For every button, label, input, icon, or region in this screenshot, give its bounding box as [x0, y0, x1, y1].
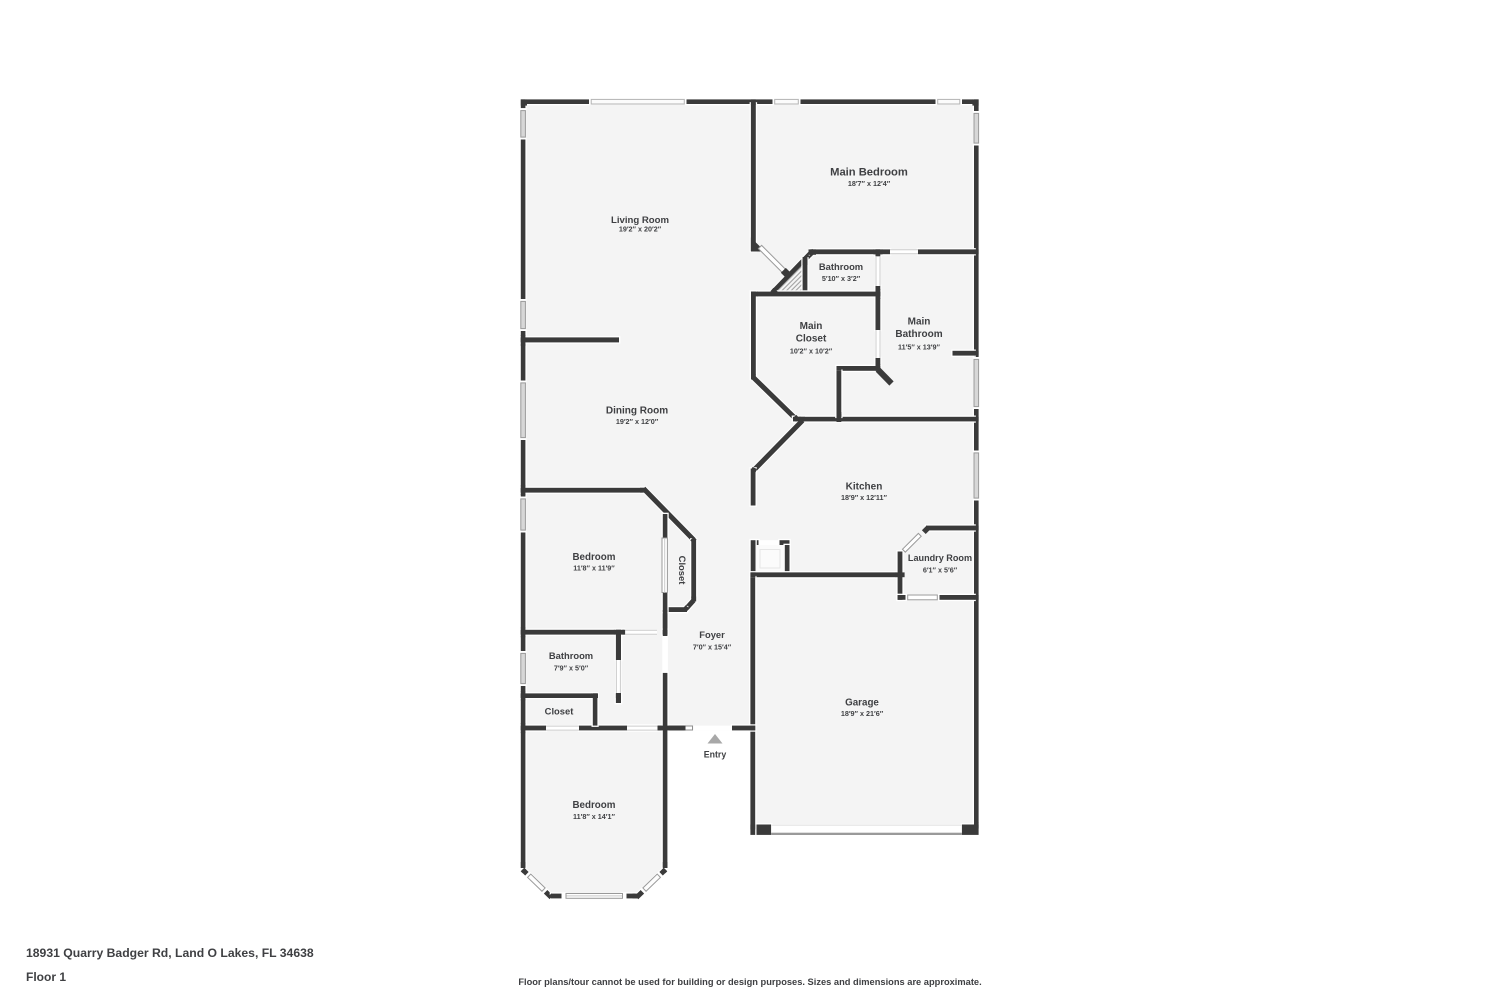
- svg-text:18′9″ x 12′11″: 18′9″ x 12′11″: [841, 493, 887, 502]
- svg-text:Closet: Closet: [796, 334, 827, 345]
- svg-text:Floor plans/tour cannot be use: Floor plans/tour cannot be used for buil…: [518, 977, 981, 987]
- svg-text:19′2″ x 12′0″: 19′2″ x 12′0″: [616, 417, 659, 426]
- svg-text:10′2″ x 10′2″: 10′2″ x 10′2″: [790, 347, 833, 356]
- svg-text:18′7″ x 12′4″: 18′7″ x 12′4″: [848, 179, 891, 188]
- svg-text:Laundry Room: Laundry Room: [908, 553, 972, 563]
- svg-text:Bedroom: Bedroom: [572, 552, 615, 563]
- svg-text:Dining Room: Dining Room: [606, 406, 668, 417]
- svg-text:Entry: Entry: [704, 750, 727, 760]
- svg-text:Bathroom: Bathroom: [549, 650, 593, 661]
- svg-text:11′8″ x 14′1″: 11′8″ x 14′1″: [573, 812, 615, 821]
- svg-text:11′5″ x 13′9″: 11′5″ x 13′9″: [898, 343, 940, 352]
- svg-text:19′2″ x 20′2″: 19′2″ x 20′2″: [619, 225, 662, 234]
- svg-text:Main: Main: [800, 321, 823, 332]
- svg-text:7′9″ x 5′0″: 7′9″ x 5′0″: [554, 664, 589, 673]
- svg-text:Closet: Closet: [677, 556, 688, 585]
- svg-text:Bathroom: Bathroom: [895, 329, 942, 340]
- svg-text:Main Bedroom: Main Bedroom: [830, 167, 908, 179]
- svg-text:6′1″ x 5′6″: 6′1″ x 5′6″: [923, 566, 958, 575]
- svg-text:Closet: Closet: [545, 706, 574, 717]
- svg-text:Foyer: Foyer: [699, 629, 725, 640]
- svg-text:Bathroom: Bathroom: [819, 261, 863, 272]
- svg-text:5′10″ x 3′2″: 5′10″ x 3′2″: [822, 274, 861, 283]
- svg-text:11′8″ x 11′9″: 11′8″ x 11′9″: [573, 564, 615, 573]
- svg-text:Kitchen: Kitchen: [846, 482, 883, 493]
- svg-text:7′0″ x 15′4″: 7′0″ x 15′4″: [693, 643, 732, 652]
- svg-text:Main: Main: [908, 317, 931, 328]
- svg-text:18931 Quarry Badger Rd, Land O: 18931 Quarry Badger Rd, Land O Lakes, FL…: [26, 946, 314, 960]
- svg-text:Bedroom: Bedroom: [572, 800, 615, 811]
- svg-text:Floor 1: Floor 1: [26, 970, 66, 984]
- svg-text:18′9″ x 21′6″: 18′9″ x 21′6″: [841, 709, 884, 718]
- svg-text:Garage: Garage: [845, 698, 879, 709]
